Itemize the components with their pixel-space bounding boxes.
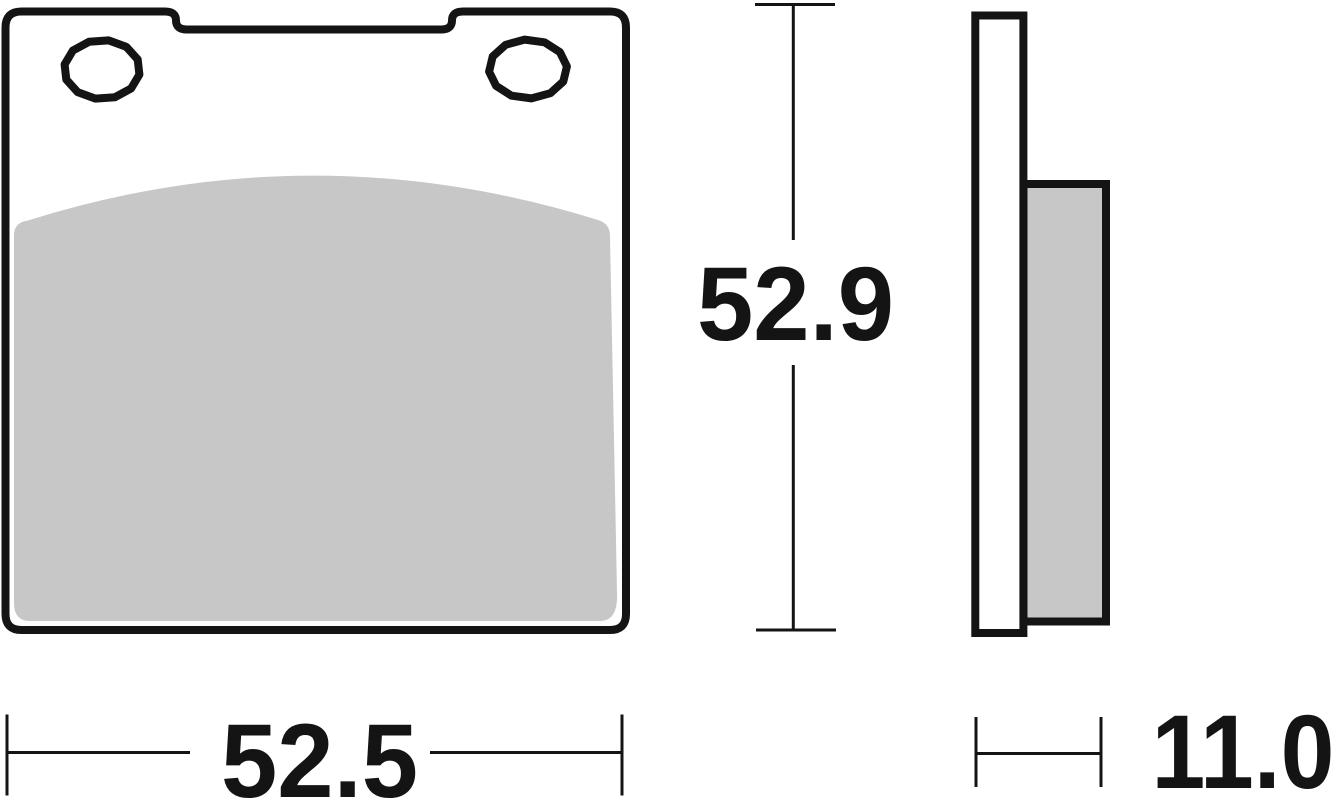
svg-text:11.0: 11.0	[1152, 694, 1335, 800]
svg-text:52.5: 52.5	[221, 703, 418, 800]
svg-text:52.9: 52.9	[697, 246, 894, 363]
